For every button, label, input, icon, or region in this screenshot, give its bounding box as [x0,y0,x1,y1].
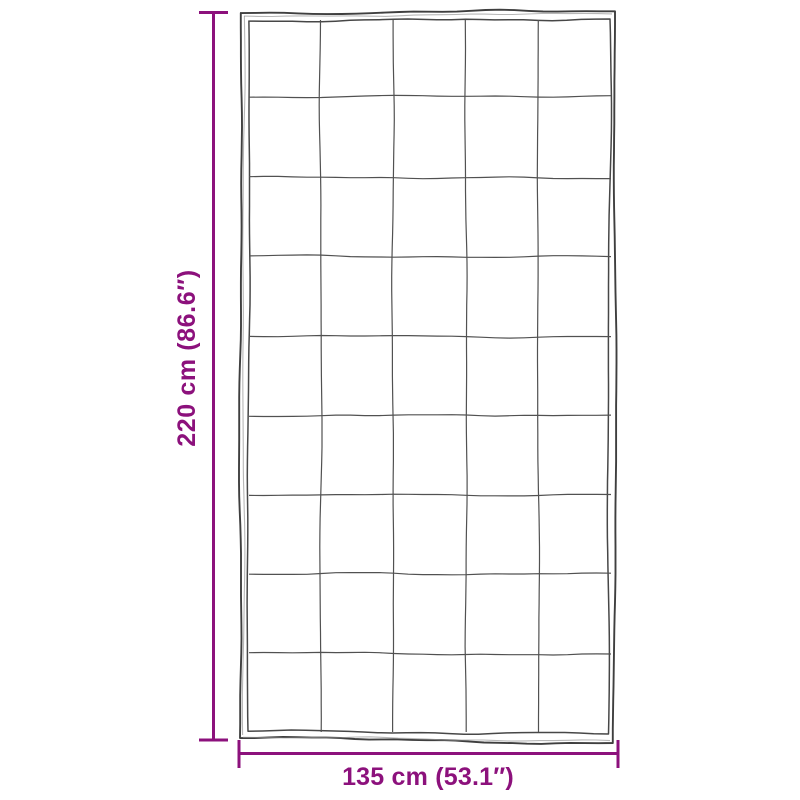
svg-text:220 cm (86.6″): 220 cm (86.6″) [173,269,201,446]
svg-text:135 cm (53.1″): 135 cm (53.1″) [342,763,514,791]
